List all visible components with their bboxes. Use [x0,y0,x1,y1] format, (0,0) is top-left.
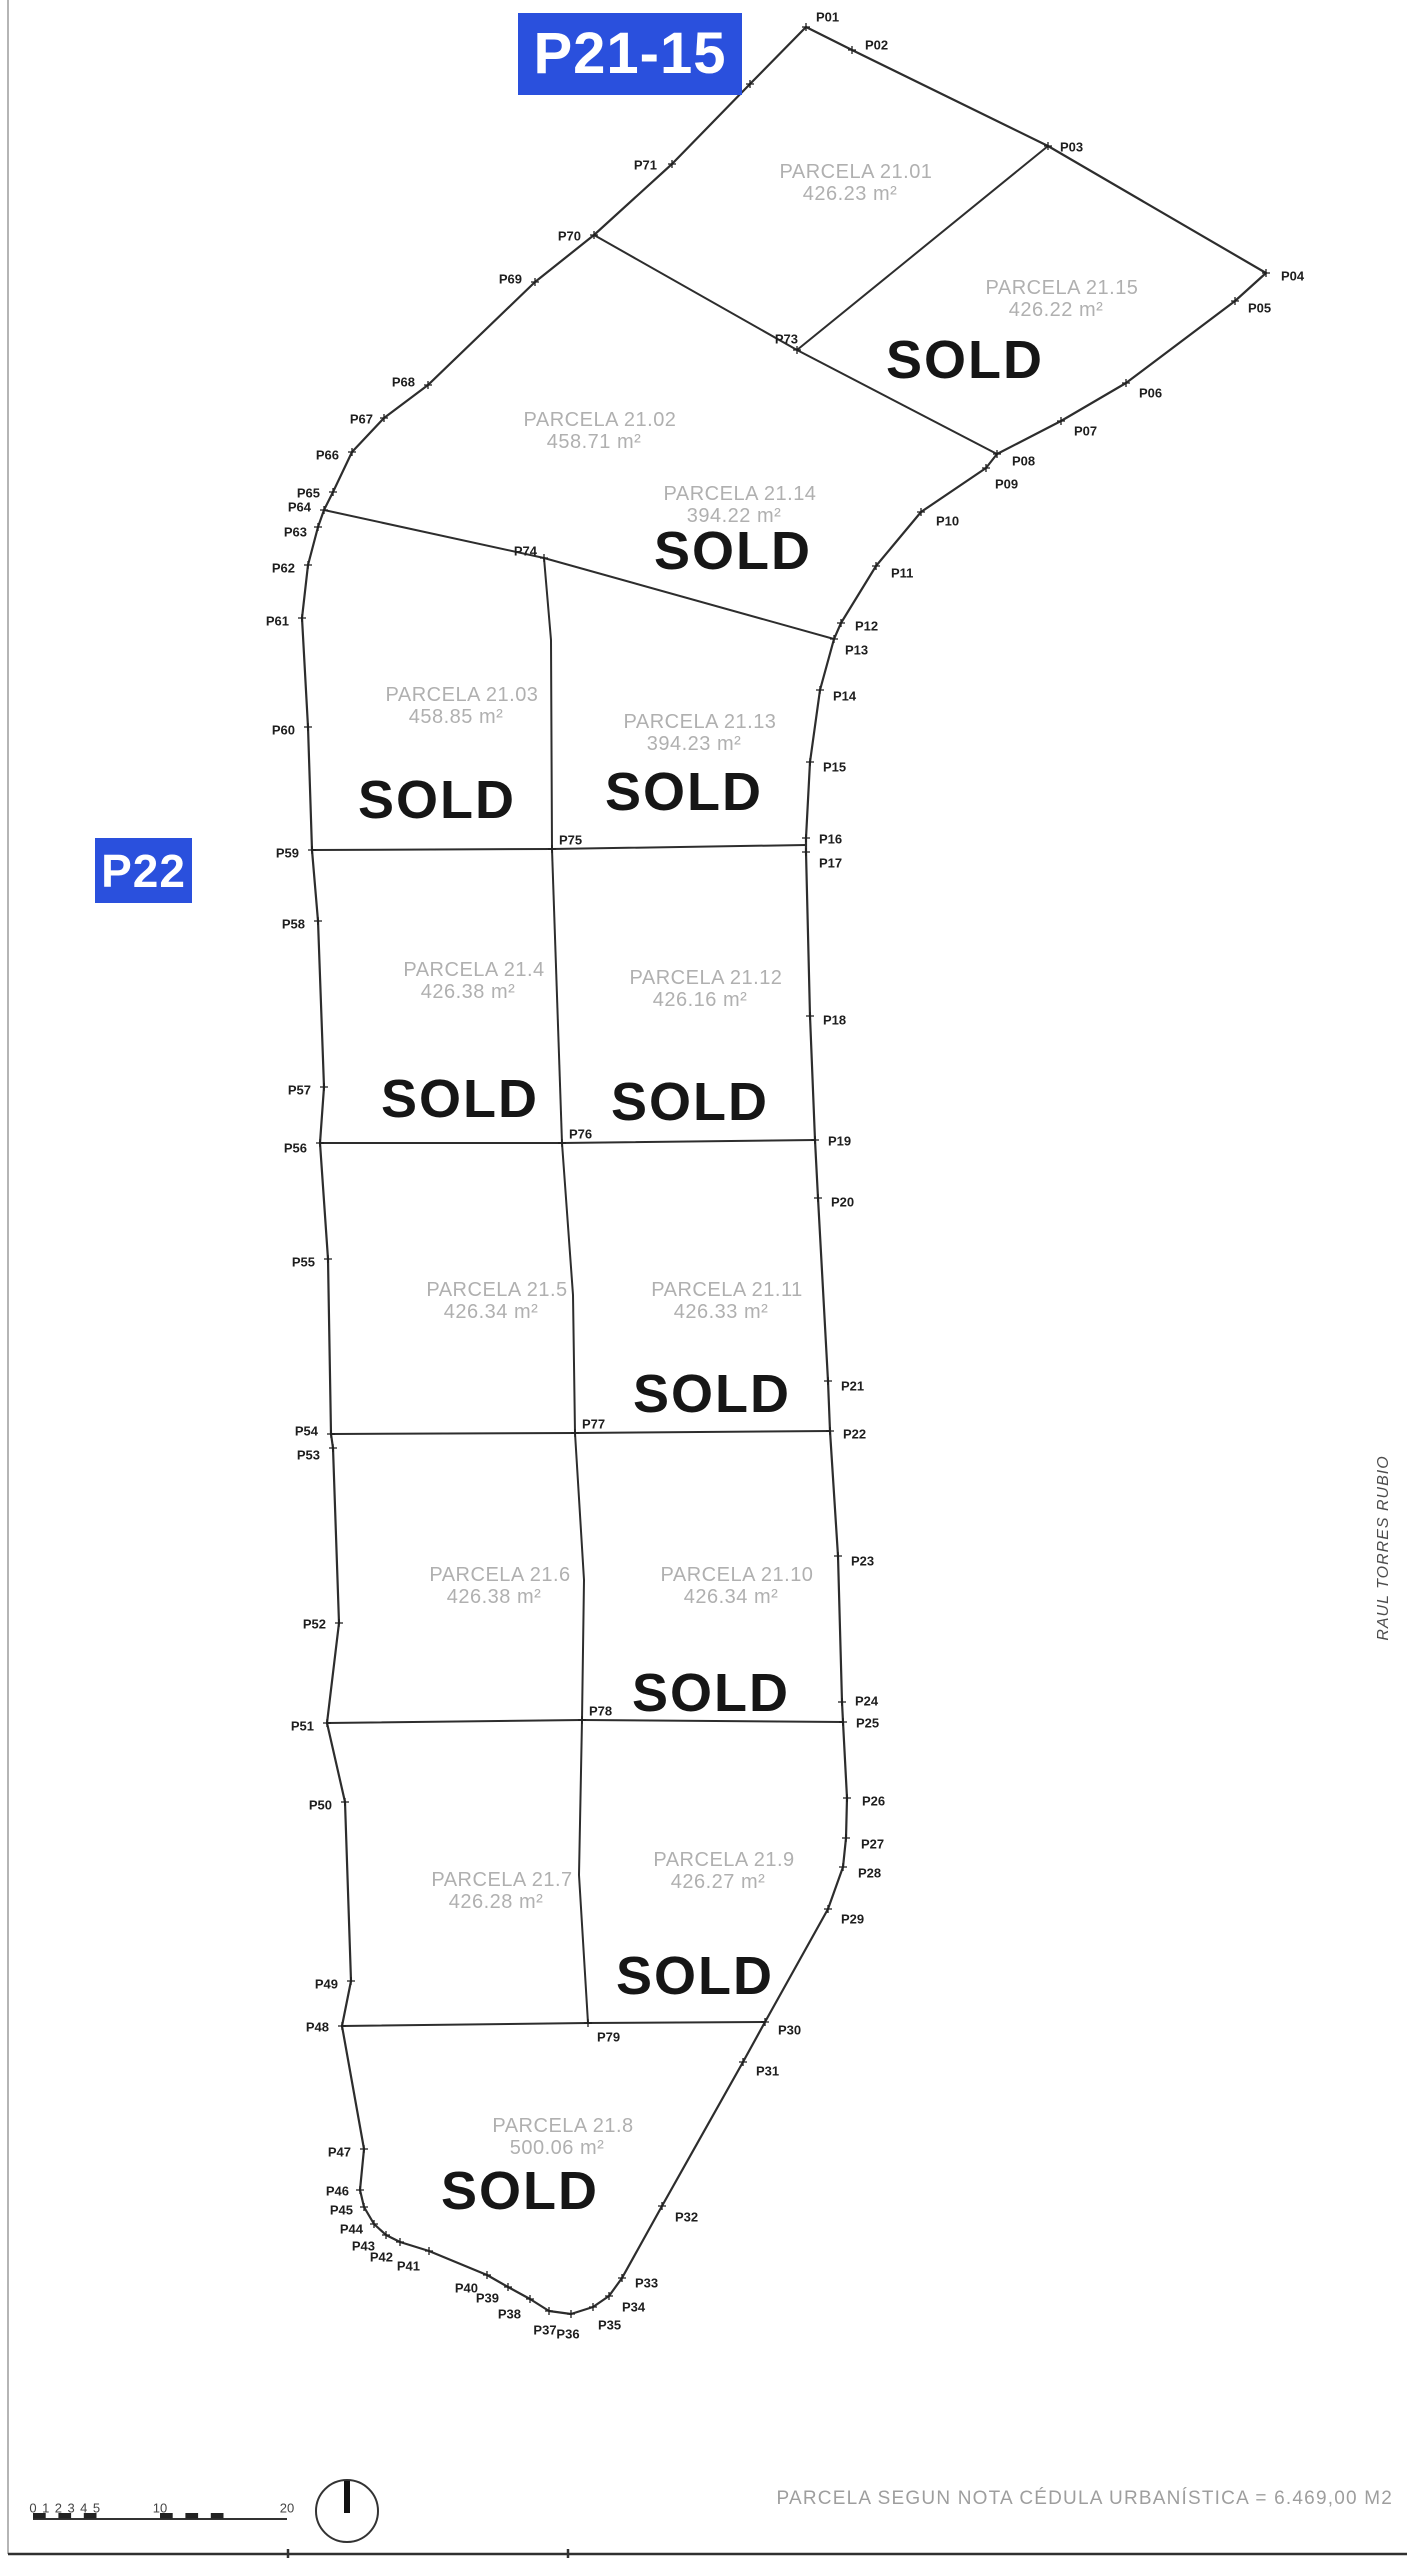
point-marker-P13 [830,635,838,643]
parcel-name-label: PARCELA 21.11 [651,1279,802,1301]
point-label-P71: P71 [634,158,657,173]
point-label-P45: P45 [330,2203,353,2218]
point-label-P06: P06 [1139,386,1162,401]
point-marker-P63 [314,523,322,531]
point-label-P65: P65 [297,486,320,501]
parcel-label-group: PARCELA 21.9426.27 m²SOLD [616,1849,795,2006]
point-label-P13: P13 [845,643,868,658]
parcel-label-group: PARCELA 21.14394.22 m²SOLD [654,483,816,581]
point-marker-P78 [578,1716,586,1724]
sold-label: SOLD [605,762,763,822]
parcel-divider-line [575,1433,584,1720]
author-name-vertical: RAUL TORRES RUBIO [1375,1455,1393,1640]
point-marker-P56 [316,1139,324,1147]
scale-label-20: 20 [280,2501,294,2516]
parcel-label-group: PARCELA 21.4426.38 m²SOLD [381,959,545,1129]
point-marker-P54 [327,1430,335,1438]
point-marker-P60 [304,723,312,731]
parcel-area-label: 426.34 m² [444,1301,539,1323]
parcel-divider-line [579,1720,588,2023]
point-marker-P77 [571,1429,579,1437]
point-label-P56: P56 [284,1141,307,1156]
point-marker-P51 [323,1719,331,1727]
point-label-P75: P75 [559,833,582,848]
point-label-P73: P73 [775,332,798,347]
point-label-P44: P44 [340,2222,364,2237]
point-label-P02: P02 [865,38,888,53]
parcel-area-label: 458.71 m² [547,431,642,453]
point-label-P15: P15 [823,760,846,775]
point-marker-P22 [826,1427,834,1435]
cedula-urbanistica-note: PARCELA SEGUN NOTA CÉDULA URBANÍSTICA = … [600,2488,1393,2510]
point-marker-P46 [356,2186,364,2194]
scale-label-3: 3 [67,2501,74,2516]
point-label-P46: P46 [326,2184,349,2199]
point-label-P28: P28 [858,1866,881,1881]
point-label-P07: P07 [1074,424,1097,439]
sold-label: SOLD [886,330,1044,390]
point-label-P21: P21 [841,1379,864,1394]
point-label-P27: P27 [861,1837,884,1852]
parcel-area-label: 500.06 m² [510,2137,605,2159]
point-label-P26: P26 [862,1794,885,1809]
point-marker-P25 [839,1718,847,1726]
point-label-P29: P29 [841,1912,864,1927]
plan-badge-p21-15: P21-15 [518,13,742,95]
parcel-divider-line [324,510,544,558]
point-marker-P58 [314,917,322,925]
parcel-label-group: PARCELA 21.02458.71 m² [524,409,677,453]
point-marker-P26 [843,1794,851,1802]
point-label-P30: P30 [778,2023,801,2038]
scale-bar-block [211,2513,224,2519]
point-label-P63: P63 [284,525,307,540]
point-marker-P52 [335,1619,343,1627]
parcel-divider-line [552,849,562,1143]
point-label-P41: P41 [397,2259,420,2274]
point-label-P32: P32 [675,2210,698,2225]
sold-label: SOLD [381,1069,539,1129]
point-marker-P36 [567,2310,575,2318]
point-marker-P21 [824,1377,832,1385]
point-label-P49: P49 [315,1977,338,1992]
point-label-P67: P67 [350,412,373,427]
point-label-P69: P69 [499,272,522,287]
point-marker-P24 [838,1698,846,1706]
parcel-divider-line [544,558,552,849]
point-marker-P47 [360,2145,368,2153]
scale-label-2: 2 [55,2501,62,2516]
sold-label: SOLD [358,770,516,830]
point-label-P23: P23 [851,1554,874,1569]
point-label-P54: P54 [295,1424,319,1439]
parcel-name-label: PARCELA 21.13 [624,711,777,733]
point-label-P22: P22 [843,1427,866,1442]
point-label-P78: P78 [589,1704,612,1719]
parcel-label-group: PARCELA 21.5426.34 m² [426,1279,567,1323]
scale-label-10: 10 [153,2501,167,2516]
parcel-area-label: 458.85 m² [409,706,504,728]
point-label-P64: P64 [288,500,312,515]
sold-label: SOLD [441,2161,599,2221]
parcel-name-label: PARCELA 21.5 [426,1279,567,1301]
parcel-name-label: PARCELA 21.03 [386,684,539,706]
point-marker-P28 [839,1863,847,1871]
point-marker-P18 [806,1012,814,1020]
point-label-P38: P38 [498,2307,521,2322]
parcel-area-label: 426.23 m² [803,183,898,205]
parcel-area-label: 426.38 m² [421,981,516,1003]
point-marker-P23 [834,1552,842,1560]
point-label-P17: P17 [819,856,842,871]
point-marker-P16 [802,834,810,842]
point-marker-P62 [304,561,312,569]
point-label-P10: P10 [936,514,959,529]
scale-label-5: 5 [93,2501,100,2516]
parcel-area-label: 426.16 m² [653,989,748,1011]
point-label-P34: P34 [622,2300,646,2315]
point-marker-P55 [324,1255,332,1263]
point-label-P79: P79 [597,2030,620,2045]
point-label-P62: P62 [272,561,295,576]
parcel-divider-line [342,2022,765,2026]
parcel-label-group: PARCELA 21.13394.23 m²SOLD [605,711,776,822]
parcel-area-label: 426.22 m² [1009,299,1104,321]
parcel-label-group: PARCELA 21.6426.38 m² [429,1564,570,1608]
point-label-P59: P59 [276,846,299,861]
point-label-P47: P47 [328,2145,351,2160]
point-label-P08: P08 [1012,454,1035,469]
parcel-name-label: PARCELA 21.01 [780,161,933,183]
point-label-P25: P25 [856,1716,879,1731]
parcel-name-label: PARCELA 21.4 [403,959,544,981]
scale-label-0: 0 [29,2501,36,2516]
point-marker-P59 [308,846,316,854]
point-marker-P64 [320,506,328,514]
parcel-area-label: 394.23 m² [647,733,742,755]
point-marker-P65 [329,488,337,496]
sold-label: SOLD [633,1364,791,1424]
point-label-P53: P53 [297,1448,320,1463]
parcel-label-group: PARCELA 21.7426.28 m² [431,1869,572,1913]
parcel-outer-boundary [302,27,1266,2314]
point-marker-P61 [298,614,306,622]
parcel-name-label: PARCELA 21.7 [431,1869,572,1891]
point-label-P20: P20 [831,1195,854,1210]
parcel-divider-line [331,1431,830,1434]
point-label-P16: P16 [819,832,842,847]
parcel-label-group: PARCELA 21.15426.22 m²SOLD [886,277,1138,390]
scale-label-1: 1 [42,2501,49,2516]
parcel-label-group: PARCELA 21.03458.85 m²SOLD [358,684,538,830]
point-label-P77: P77 [582,1417,605,1432]
point-label-P37: P37 [533,2323,556,2338]
parcel-area-label: 426.33 m² [674,1301,769,1323]
point-label-P04: P04 [1281,269,1305,284]
point-marker-P79 [584,2019,592,2027]
point-label-P70: P70 [558,229,581,244]
parcel-name-label: PARCELA 21.14 [664,483,817,505]
point-label-P24: P24 [855,1694,879,1709]
point-marker-P49 [347,1977,355,1985]
sold-label: SOLD [654,521,812,581]
plan-badge-p22: P22 [95,838,192,903]
point-label-P76: P76 [569,1127,592,1142]
point-label-P60: P60 [272,723,295,738]
point-label-P11: P11 [891,566,913,581]
parcel-name-label: PARCELA 21.10 [661,1564,814,1586]
point-label-P43: P43 [352,2239,375,2254]
site-plan-page: PARCELA 21.01426.23 m²PARCELA 21.02458.7… [0,0,1407,2560]
point-label-P68: P68 [392,375,415,390]
point-label-P52: P52 [303,1617,326,1632]
scale-bar-block [185,2513,198,2519]
point-marker-P02 [848,46,856,54]
parcel-name-label: PARCELA 21.12 [630,967,783,989]
point-marker-P42 [396,2238,404,2246]
parcel-name-label: PARCELA 21.6 [429,1564,570,1586]
parcel-map-svg: PARCELA 21.01426.23 m²PARCELA 21.02458.7… [0,0,1407,2560]
point-label-P19: P19 [828,1134,851,1149]
parcel-area-label: 426.34 m² [684,1586,779,1608]
parcel-area-label: 426.38 m² [447,1586,542,1608]
scale-label-4: 4 [80,2501,87,2516]
parcel-label-group: PARCELA 21.10426.34 m²SOLD [632,1564,813,1723]
point-marker-P19 [811,1136,819,1144]
point-label-P05: P05 [1248,301,1271,316]
point-marker-P74 [540,554,548,562]
point-marker-P57 [320,1083,328,1091]
point-marker-P27 [842,1834,850,1842]
parcel-divider-line [320,1140,815,1143]
point-marker-P50 [341,1798,349,1806]
point-label-P50: P50 [309,1798,332,1813]
point-label-P55: P55 [292,1255,315,1270]
parcel-name-label: PARCELA 21.15 [986,277,1139,299]
point-marker-P41 [425,2247,433,2255]
point-label-P40: P40 [455,2281,478,2296]
point-label-P51: P51 [291,1719,314,1734]
point-label-P14: P14 [833,689,857,704]
point-label-P66: P66 [316,448,339,463]
point-label-P18: P18 [823,1013,846,1028]
sold-label: SOLD [611,1072,769,1132]
point-label-P12: P12 [855,619,878,634]
parcel-label-group: PARCELA 21.8500.06 m²SOLD [441,2115,634,2221]
point-label-P57: P57 [288,1083,311,1098]
sold-label: SOLD [616,1946,774,2006]
point-label-P58: P58 [282,917,305,932]
parcel-area-label: 426.28 m² [449,1891,544,1913]
point-label-P48: P48 [306,2020,329,2035]
point-marker-P48 [338,2022,346,2030]
parcel-name-label: PARCELA 21.9 [653,1849,794,1871]
parcel-label-group: PARCELA 21.11426.33 m²SOLD [633,1279,803,1424]
point-label-P61: P61 [266,614,289,629]
point-label-P33: P33 [635,2276,658,2291]
point-label-P09: P09 [995,477,1018,492]
parcel-name-label: PARCELA 21.8 [492,2115,633,2137]
point-label-P03: P03 [1060,140,1083,155]
point-label-P36: P36 [556,2327,579,2342]
point-marker-P14 [816,686,824,694]
point-label-P74: P74 [514,544,538,559]
parcel-divider-line [594,235,797,350]
parcel-area-label: 426.27 m² [671,1871,766,1893]
point-marker-P17 [802,848,810,856]
point-label-P39: P39 [476,2291,499,2306]
parcel-label-group: PARCELA 21.01426.23 m² [780,161,933,205]
parcel-name-label: PARCELA 21.02 [524,409,677,431]
sold-label: SOLD [632,1663,790,1723]
point-marker-P53 [329,1444,337,1452]
parcel-label-group: PARCELA 21.12426.16 m²SOLD [611,967,782,1132]
point-label-P31: P31 [756,2064,779,2079]
point-marker-P75 [548,845,556,853]
point-marker-P76 [558,1139,566,1147]
point-label-P35: P35 [598,2318,621,2333]
point-label-P01: P01 [816,10,839,25]
point-marker-P20 [814,1194,822,1202]
point-marker-P15 [806,758,814,766]
